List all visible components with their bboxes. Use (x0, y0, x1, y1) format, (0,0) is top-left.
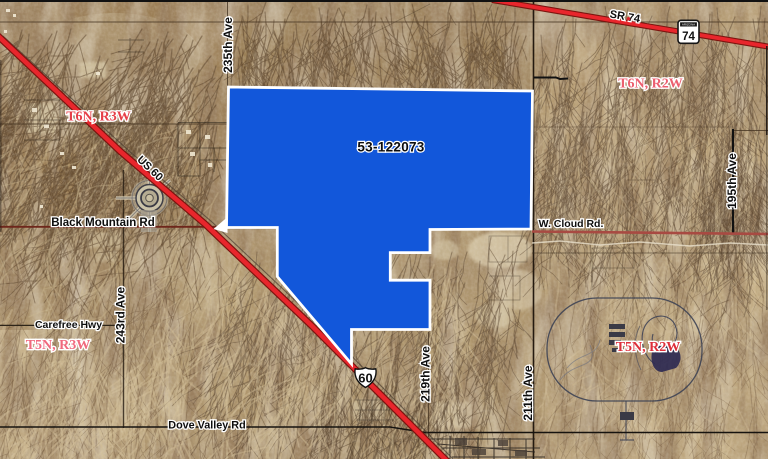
svg-text:243rd Ave: 243rd Ave (114, 286, 128, 343)
svg-text:T5N, R3W: T5N, R3W (26, 338, 91, 353)
svg-text:T6N, R2W: T6N, R2W (618, 77, 683, 92)
svg-text:T5N, R2W: T5N, R2W (616, 340, 681, 355)
svg-text:60: 60 (358, 370, 372, 385)
svg-text:211th Ave: 211th Ave (521, 365, 535, 420)
svg-text:195th Ave: 195th Ave (725, 153, 739, 209)
svg-text:Dove Valley Rd: Dove Valley Rd (168, 420, 245, 432)
svg-text:Carefree Hwy: Carefree Hwy (35, 319, 102, 331)
svg-text:ARIZONA: ARIZONA (682, 23, 695, 27)
svg-text:53-122073: 53-122073 (357, 140, 424, 155)
svg-text:235th Ave: 235th Ave (221, 17, 235, 73)
svg-text:W. Cloud Rd.: W. Cloud Rd. (539, 218, 604, 230)
svg-text:74: 74 (682, 31, 695, 43)
svg-text:T6N, R3W: T6N, R3W (66, 110, 131, 125)
svg-text:Black Mountain Rd: Black Mountain Rd (51, 217, 155, 229)
svg-text:219th Ave: 219th Ave (419, 346, 433, 402)
